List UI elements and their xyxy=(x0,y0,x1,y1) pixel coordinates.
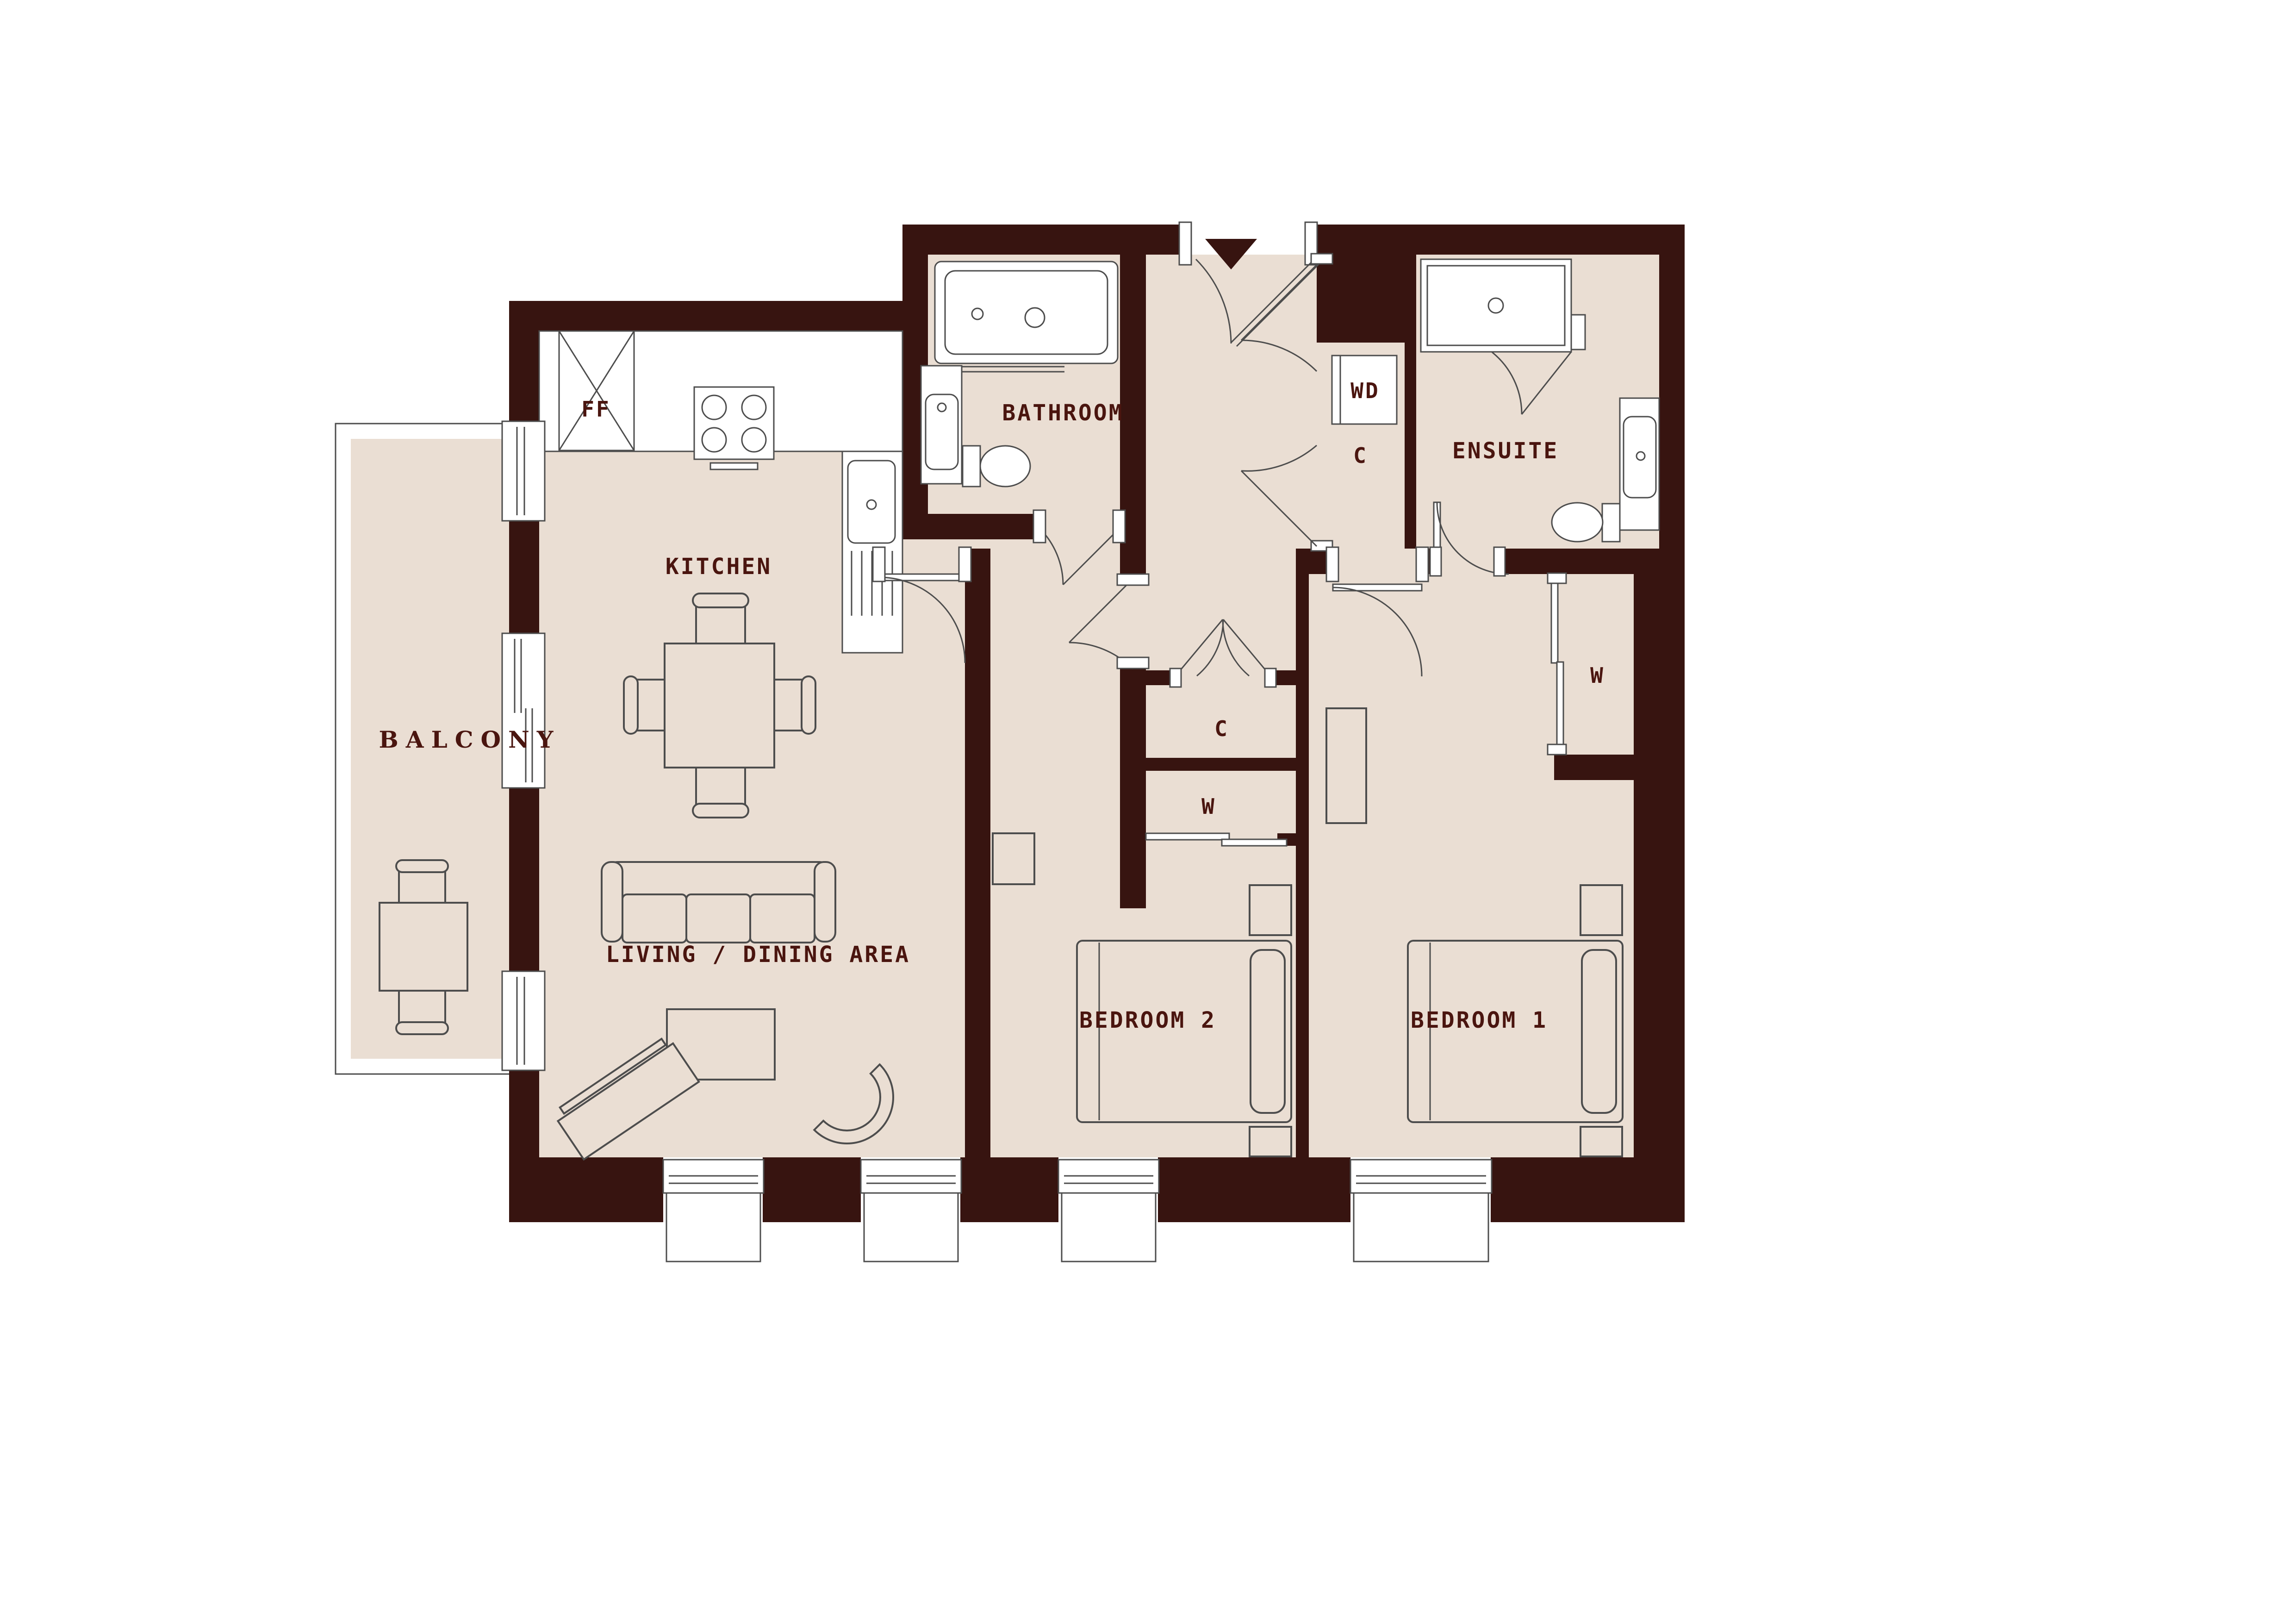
closet-post-top xyxy=(1311,254,1332,264)
kitchen-door-post-l xyxy=(873,547,885,581)
wall-bathroom-top xyxy=(902,225,1187,255)
balcony-chair-bottom-back xyxy=(396,1022,448,1034)
wall-bedroom2-west xyxy=(965,549,990,1157)
bed2-nightstand-top xyxy=(1250,885,1291,935)
bed1-nightstand-bottom xyxy=(1580,1127,1622,1156)
wall-b1-wardrobe-south xyxy=(1554,755,1634,780)
wall-right-lower xyxy=(1634,549,1685,1222)
balcony-label: BALCONY xyxy=(379,726,561,753)
bedroom1-wardrobe-label: W xyxy=(1590,663,1605,688)
bed2-nightstand-bottom xyxy=(1250,1127,1291,1156)
bathroom-door-post-r xyxy=(1113,510,1125,543)
kitchen-label: KITCHEN xyxy=(666,554,772,580)
wall-left-2 xyxy=(509,518,539,634)
wall-bottom-1 xyxy=(509,1157,663,1222)
dining-chair-bottom-back xyxy=(693,804,748,818)
window-living-1 xyxy=(663,1160,764,1262)
dining-chair-top xyxy=(696,604,745,646)
wall-kitchen-top xyxy=(509,301,902,331)
bedroom1-door-post-r xyxy=(1416,547,1428,581)
mid-cupboard-label: C xyxy=(1214,716,1229,741)
balcony-door xyxy=(502,633,545,788)
bathroom-toilet xyxy=(963,446,1030,487)
b1-wardrobe-post-t xyxy=(1548,573,1566,583)
ensuite-label: ENSUITE xyxy=(1452,438,1559,464)
wall-bottom-2 xyxy=(763,1157,861,1222)
sofa-cushion-1 xyxy=(622,894,686,943)
midcloset-post-r xyxy=(1265,668,1276,687)
window-bedroom1 xyxy=(1350,1160,1492,1262)
dining-chair-left-back xyxy=(624,676,638,734)
bed2-pillow xyxy=(1251,950,1285,1113)
balcony-chair-bottom xyxy=(399,990,445,1025)
bedroom2-door-post-t xyxy=(1117,574,1149,585)
b1-wardrobe-slider-2 xyxy=(1557,662,1563,745)
entrance-closet-label: C xyxy=(1353,443,1368,468)
window-left-1 xyxy=(502,421,545,521)
wall-left-1 xyxy=(509,301,539,424)
b1-wardrobe-slider-1 xyxy=(1551,580,1558,663)
window-left-2 xyxy=(502,971,545,1070)
bed1-nightstand-top xyxy=(1580,885,1622,935)
wall-left-3 xyxy=(509,787,539,972)
sofa-arm-left xyxy=(602,862,622,942)
oven-handle xyxy=(710,463,758,469)
sofa-back xyxy=(604,862,833,898)
shower-tray xyxy=(1421,259,1571,352)
bathroom-door-post-l xyxy=(1033,510,1045,543)
balcony-chair-top-back xyxy=(396,860,448,872)
wall-above-entrance-closet xyxy=(1317,255,1416,343)
wall-bathroom-south xyxy=(902,514,1039,539)
sofa-cushion-3 xyxy=(750,894,815,943)
kitchen-door-post-r xyxy=(959,547,971,581)
sofa-cushion-2 xyxy=(686,894,750,943)
wall-bottom-3 xyxy=(960,1157,1058,1222)
bed2-desk xyxy=(993,833,1034,884)
balcony-table xyxy=(380,903,467,991)
bed1-desk xyxy=(1326,708,1366,823)
bedroom2-label: BEDROOM 2 xyxy=(1079,1007,1216,1033)
bedroom1-label: BEDROOM 1 xyxy=(1411,1007,1548,1033)
midcloset-post-l xyxy=(1170,668,1181,687)
wall-right-upper xyxy=(1659,225,1685,549)
sofa xyxy=(602,862,835,943)
mid-wardrobe-slider-2 xyxy=(1222,839,1287,846)
entrance-post-left xyxy=(1179,222,1191,265)
wall-midcloset-divider xyxy=(1146,758,1296,771)
ensuite-door-post-r xyxy=(1494,547,1505,576)
wall-bottom-4 xyxy=(1158,1157,1350,1222)
kitchen-door-leaf xyxy=(879,574,965,581)
bedroom1-door-leaf xyxy=(1333,584,1422,591)
dining-table xyxy=(665,643,774,768)
window-bedroom2 xyxy=(1058,1160,1159,1262)
washer-dryer-label: WD xyxy=(1350,378,1380,403)
ensuite-toilet xyxy=(1552,503,1620,542)
floor-plan-canvas: KITCHEN BATHROOM ENSUITE BEDROOM 2 BEDRO… xyxy=(0,0,2296,1624)
bedroom1-door-post-l xyxy=(1326,547,1338,581)
wall-corridor-west-b xyxy=(1120,667,1146,908)
mid-wardrobe-slider-1 xyxy=(1146,833,1229,840)
wall-corridor-west-a xyxy=(1120,539,1146,579)
mid-wardrobe-label: W xyxy=(1201,794,1216,819)
kitchen-sink xyxy=(848,461,895,543)
shower-control xyxy=(1571,315,1585,350)
ensuite-door-post-l xyxy=(1430,547,1441,576)
wall-top-right xyxy=(1317,225,1685,255)
dining-chair-bottom xyxy=(696,765,745,807)
wall-bedrooms-divider xyxy=(1296,549,1309,1157)
wall-bathroom-east xyxy=(1120,255,1146,539)
wall-ensuite-west xyxy=(1405,343,1416,549)
floor-plan: KITCHEN BATHROOM ENSUITE BEDROOM 2 BEDRO… xyxy=(0,0,2296,1624)
balcony-chair-top xyxy=(399,869,445,905)
bedroom2-door-post-b xyxy=(1117,657,1149,668)
b1-wardrobe-post-b xyxy=(1548,744,1566,755)
window-living-2 xyxy=(861,1160,961,1262)
bed1-pillow xyxy=(1582,950,1616,1113)
ensuite-sink xyxy=(1624,417,1656,498)
dining-chair-right-back xyxy=(802,676,815,734)
sofa-arm-right xyxy=(815,862,835,942)
bathroom-sink xyxy=(926,394,958,469)
bathroom-label: BATHROOM xyxy=(1002,400,1124,426)
fridge-freezer-label: FF xyxy=(581,397,610,422)
living-dining-label: LIVING / DINING AREA xyxy=(606,942,910,968)
wall-hall-south-c xyxy=(1502,549,1659,574)
dining-chair-top-back xyxy=(693,593,748,607)
